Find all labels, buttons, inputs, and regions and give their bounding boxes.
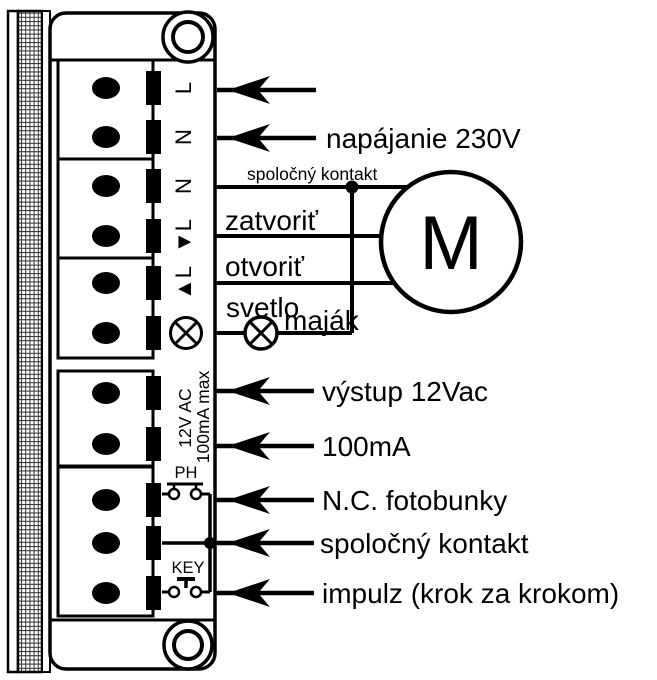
terminal-dot <box>92 225 120 247</box>
terminal-dot <box>92 77 120 99</box>
label-common-bottom: spoločný kontakt <box>320 528 529 559</box>
terminal-clamp <box>146 483 161 517</box>
terminal-clamp <box>146 576 161 610</box>
arrow-100ma-icon <box>214 432 314 460</box>
terminal-label-n1: N <box>171 129 196 145</box>
label-impulse: impulz (krok za krokom) <box>322 578 619 609</box>
arrow-impulse-icon <box>214 579 314 607</box>
rail-strip-hatched <box>18 11 42 672</box>
label-output-12vac: výstup 12Vac <box>322 376 488 407</box>
motor-symbol: M <box>381 172 521 312</box>
terminal-dot <box>92 489 120 511</box>
aux-current-label: 100mA max <box>193 371 213 464</box>
label-100ma: 100mA <box>322 431 411 462</box>
label-power: napájanie 230V <box>326 123 521 154</box>
rail-strip-outer <box>8 11 18 672</box>
terminal-label-l: L <box>171 82 196 94</box>
terminal-dot <box>92 433 120 455</box>
arrow-n-icon <box>217 124 316 152</box>
terminal-dot <box>92 126 120 148</box>
label-open: otvoriť <box>225 251 304 282</box>
terminal-dot <box>92 272 120 294</box>
terminal-clamp <box>146 526 161 560</box>
arrow-photocell-icon <box>214 486 314 514</box>
terminal-clamp <box>146 316 161 350</box>
terminal-label-close: ▼L <box>171 219 196 253</box>
terminal-clamp <box>146 120 161 154</box>
terminal-dot <box>92 582 120 604</box>
arrow-common-icon <box>214 529 314 557</box>
screw-bottom <box>164 621 212 669</box>
label-close: zatvoriť <box>225 205 318 236</box>
terminal-clamp <box>146 266 161 300</box>
label-beacon: maják <box>284 305 360 336</box>
label-nc-photocells: N.C. fotobunky <box>322 485 507 516</box>
terminal-clamp <box>146 376 161 410</box>
motor-label: M <box>419 201 482 286</box>
terminal-clamp <box>146 71 161 105</box>
terminal-dot <box>92 175 120 197</box>
mounting-rail <box>8 11 50 672</box>
wiring-diagram-page: L N N ▼L ▲L 12V AC 100mA max PH KEY <box>0 0 657 680</box>
ph-label: PH <box>175 464 198 482</box>
terminal-clamp <box>146 219 161 253</box>
screw-top <box>163 12 213 62</box>
arrow-l-icon <box>217 76 316 104</box>
terminal-clamps <box>146 71 161 610</box>
label-common-top: spoločný kontakt <box>247 164 377 184</box>
key-label: KEY <box>171 559 204 577</box>
wiring-diagram: L N N ▼L ▲L 12V AC 100mA max PH KEY <box>0 0 657 680</box>
terminal-dot <box>92 532 120 554</box>
terminal-label-n2: N <box>171 178 196 194</box>
terminal-label-open: ▲L <box>171 266 196 300</box>
terminal-dot <box>92 382 120 404</box>
terminal-dot <box>92 322 120 344</box>
terminal-clamp <box>146 169 161 203</box>
aux-voltage-label: 12V AC <box>175 388 195 447</box>
arrow-12vac-icon <box>214 377 314 405</box>
terminal-clamp <box>146 427 161 461</box>
